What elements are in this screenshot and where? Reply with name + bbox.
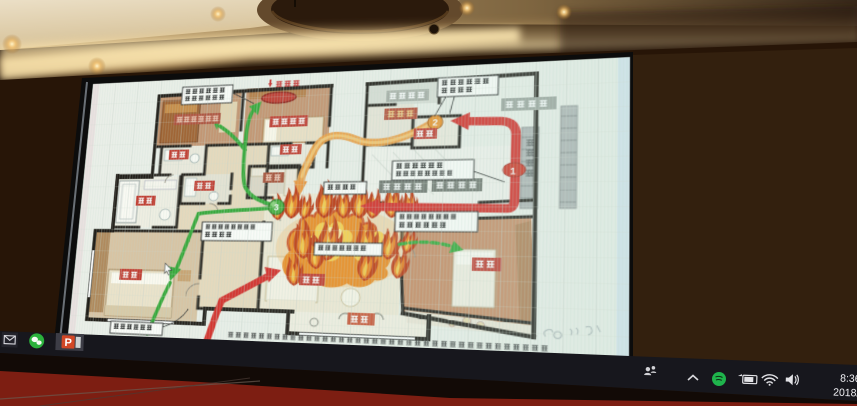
svg-text:2018/8/: 2018/8/ xyxy=(833,387,857,400)
svg-text:8:36: 8:36 xyxy=(840,372,857,385)
svg-text:P: P xyxy=(64,337,72,349)
